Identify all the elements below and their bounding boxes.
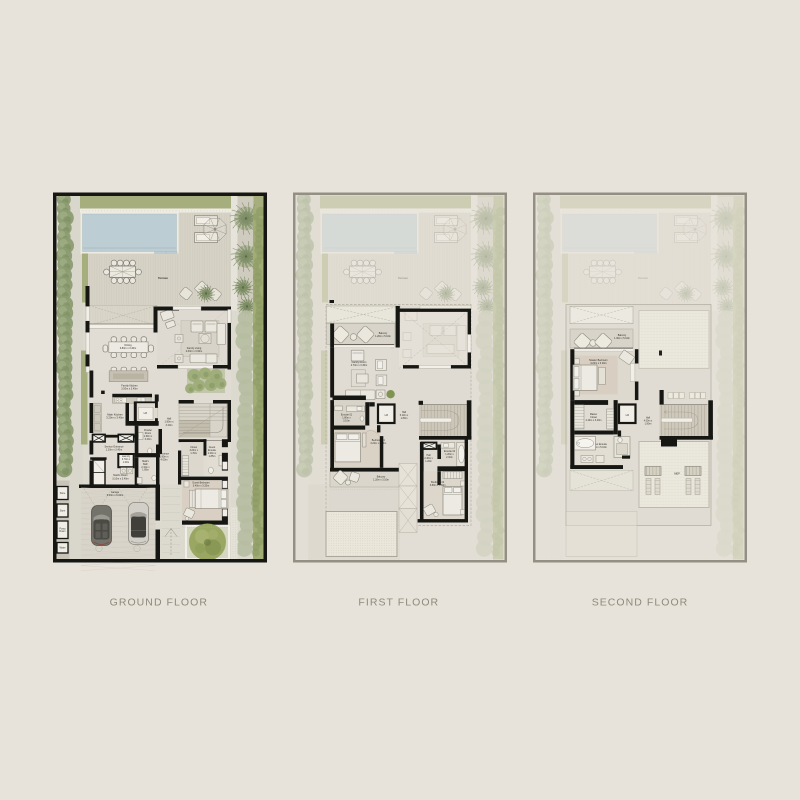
svg-text:1.20m x 5.10m: 1.20m x 5.10m bbox=[375, 335, 391, 338]
svg-text:3.20m x 3.40m: 3.20m x 3.40m bbox=[106, 416, 125, 420]
svg-text:MEP: MEP bbox=[674, 472, 680, 476]
svg-text:3.20m: 3.20m bbox=[166, 424, 173, 427]
svg-text:3.10m x 3.40m: 3.10m x 3.40m bbox=[112, 477, 129, 480]
svg-text:1.30m x 5.10m: 1.30m x 5.10m bbox=[614, 337, 630, 340]
svg-text:2.40m x 3.40m: 2.40m x 3.40m bbox=[586, 419, 602, 422]
svg-text:2.10m x: 2.10m x bbox=[141, 467, 150, 469]
svg-text:Terrace: Terrace bbox=[158, 276, 168, 280]
svg-text:Terrace: Terrace bbox=[398, 276, 408, 280]
svg-text:3.80m x 3.40m: 3.80m x 3.40m bbox=[120, 347, 137, 350]
svg-text:Terrace: Terrace bbox=[638, 276, 648, 280]
svg-text:Main Kitchen: Main Kitchen bbox=[107, 412, 123, 416]
svg-text:Lift: Lift bbox=[626, 413, 630, 417]
svg-text:Store: Store bbox=[60, 510, 66, 513]
svg-text:1.80m: 1.80m bbox=[401, 417, 408, 420]
svg-text:1.70m: 1.70m bbox=[190, 452, 197, 455]
svg-text:Bath: Bath bbox=[143, 463, 148, 466]
svg-text:0.70m x: 0.70m x bbox=[122, 459, 131, 461]
svg-text:Lift: Lift bbox=[144, 411, 148, 415]
svg-text:1.85m: 1.85m bbox=[209, 455, 216, 458]
svg-text:Store: Store bbox=[60, 492, 66, 495]
svg-text:GROUND FLOOR: GROUND FLOOR bbox=[110, 597, 208, 609]
svg-text:1.20m: 1.20m bbox=[425, 460, 432, 463]
svg-text:3.40m: 3.40m bbox=[145, 438, 152, 441]
svg-text:4.20m x 3.20m: 4.20m x 3.20m bbox=[590, 362, 607, 365]
svg-text:1.20m x 3.40m: 1.20m x 3.40m bbox=[106, 448, 123, 451]
svg-text:1.00m: 1.00m bbox=[123, 462, 129, 464]
svg-text:4.70m x 3.30m: 4.70m x 3.30m bbox=[351, 364, 368, 367]
svg-text:1.80m: 1.80m bbox=[645, 423, 652, 426]
svg-text:1.85m: 1.85m bbox=[142, 470, 148, 472]
svg-text:2.40m: 2.40m bbox=[446, 456, 453, 459]
svg-text:3.10m: 3.10m bbox=[343, 420, 350, 423]
svg-text:Pump: Pump bbox=[59, 528, 66, 530]
svg-text:4.00m: 4.00m bbox=[161, 459, 168, 462]
svg-text:6.00m x 6.00m: 6.00m x 6.00m bbox=[107, 494, 124, 497]
svg-text:3.00m x 3.40m: 3.00m x 3.40m bbox=[121, 387, 138, 390]
svg-text:4.00m x 3.90m: 4.00m x 3.90m bbox=[186, 350, 203, 353]
svg-text:SECOND FLOOR: SECOND FLOOR bbox=[592, 597, 689, 609]
svg-text:Water: Water bbox=[59, 547, 65, 550]
svg-text:Lift: Lift bbox=[385, 413, 389, 417]
svg-text:3.40m x 3.20m: 3.40m x 3.20m bbox=[193, 484, 210, 487]
svg-text:1.20m x 3.10m: 1.20m x 3.10m bbox=[373, 479, 389, 482]
svg-text:FIRST FLOOR: FIRST FLOOR bbox=[358, 597, 439, 609]
svg-text:3.24m x 3.20m: 3.24m x 3.20m bbox=[370, 442, 386, 445]
svg-text:Room: Room bbox=[59, 531, 65, 533]
svg-text:Maid's: Maid's bbox=[142, 461, 149, 463]
svg-text:Laundry: Laundry bbox=[122, 455, 131, 458]
